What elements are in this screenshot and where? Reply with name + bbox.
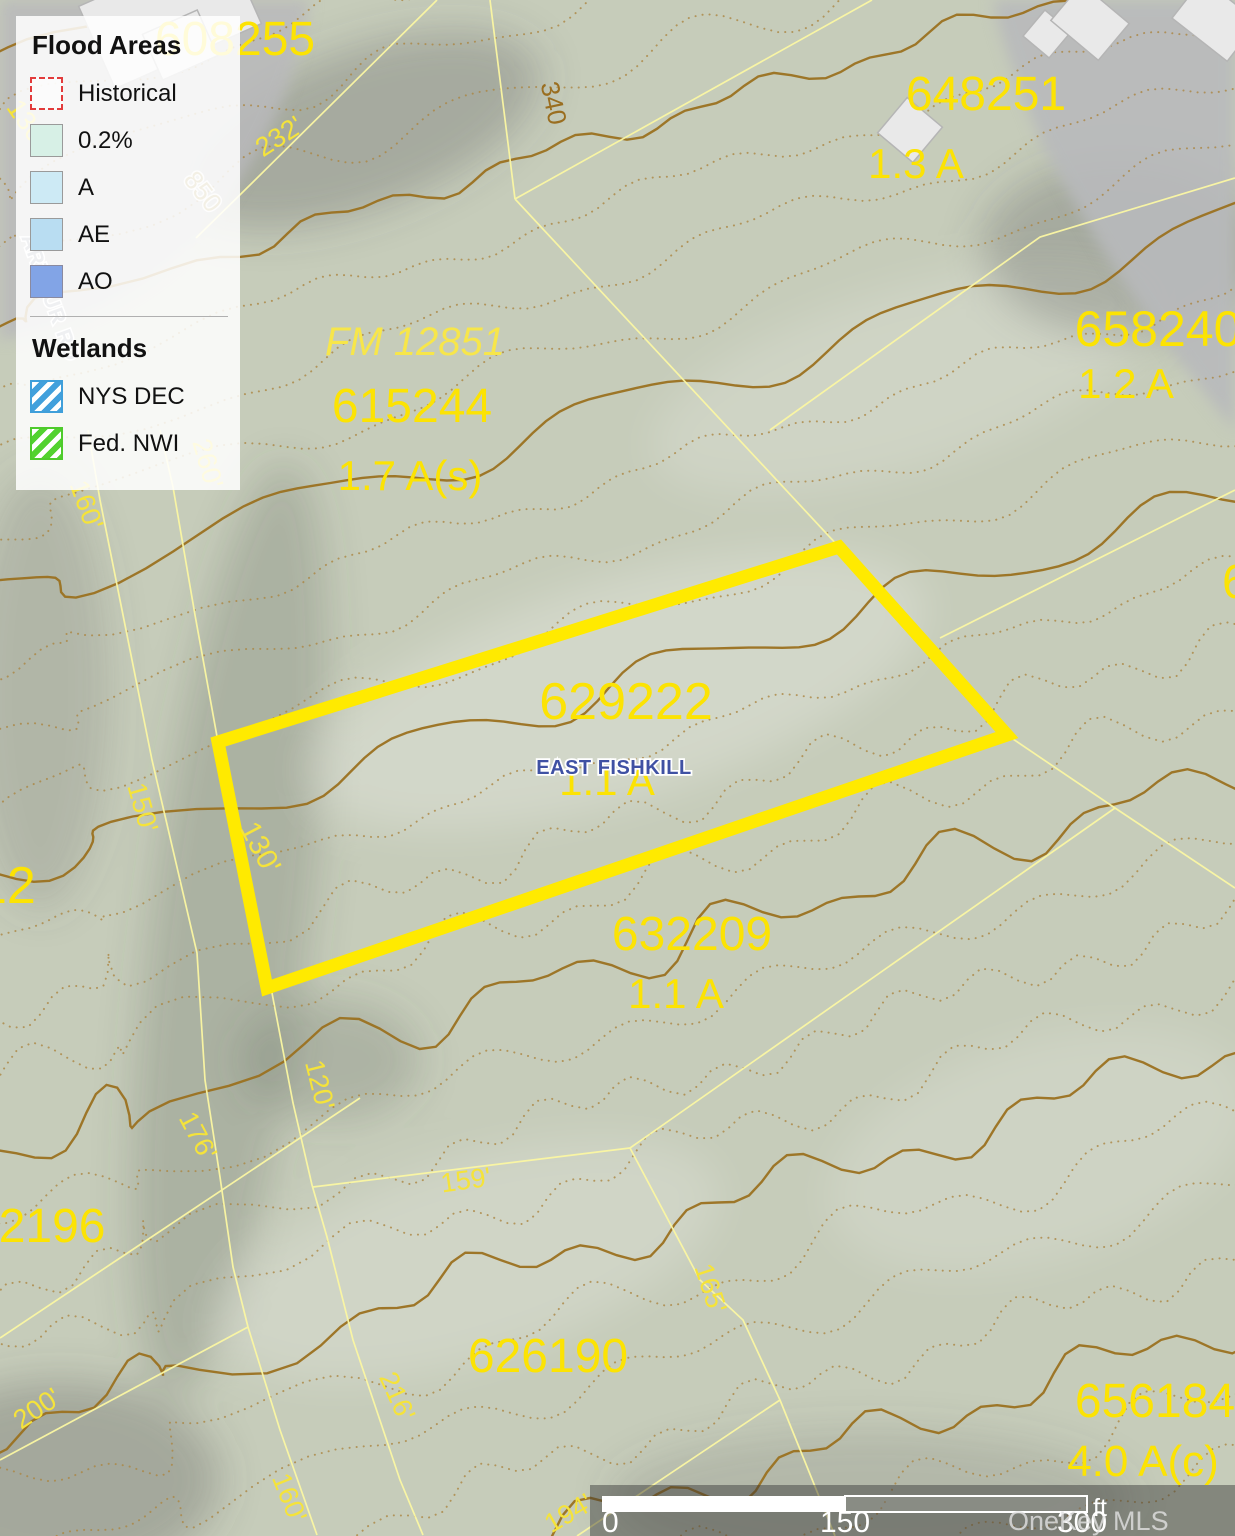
flood-02pct-swatch-icon bbox=[30, 124, 63, 157]
parcel-label-626190[interactable]: 626190 bbox=[468, 1330, 628, 1383]
flood-zone-ae-swatch-icon bbox=[30, 218, 63, 251]
legend-label: AE bbox=[78, 221, 110, 249]
parcel-label-656184[interactable]: 656184 bbox=[1075, 1375, 1235, 1428]
legend-wetlands-title: Wetlands bbox=[32, 333, 228, 364]
legend-item-zone-ae: AE bbox=[30, 218, 228, 251]
fed-nwi-swatch-icon bbox=[30, 427, 63, 460]
legend-item-zone-a: A bbox=[30, 171, 228, 204]
parcel-area-632209: 1.1 A bbox=[628, 970, 724, 1017]
scale-bar-segment-1 bbox=[602, 1496, 845, 1512]
parcel-label-6[interactable]: 6 bbox=[1222, 556, 1235, 609]
parcel-label-615244[interactable]: 615244 bbox=[332, 380, 492, 433]
legend-item-fed-nwi: Fed. NWI bbox=[30, 427, 228, 460]
parcel-label-648251[interactable]: 648251 bbox=[906, 68, 1066, 121]
legend-item-02pct: 0.2% bbox=[30, 124, 228, 157]
legend-item-historical: Historical bbox=[30, 77, 228, 110]
town-label-east-fishkill: EAST FISHKILL bbox=[536, 757, 691, 779]
scale-mid: 150 bbox=[820, 1506, 870, 1536]
scale-zero: 0 bbox=[602, 1506, 619, 1536]
flood-zone-ao-swatch-icon bbox=[30, 265, 63, 298]
parcel-area-615244: 1.7 A(s) bbox=[338, 452, 483, 499]
legend-label: NYS DEC bbox=[78, 383, 185, 411]
parcel-label-632209[interactable]: 632209 bbox=[612, 908, 772, 961]
legend-label: Fed. NWI bbox=[78, 430, 179, 458]
legend-panel: Flood Areas Historical 0.2% A AE AO Wetl… bbox=[16, 16, 240, 490]
legend-label: Historical bbox=[78, 80, 177, 108]
historical-swatch-icon bbox=[30, 77, 63, 110]
legend-label: A bbox=[78, 174, 94, 202]
legend-label: 0.2% bbox=[78, 127, 133, 155]
parcel-label-629222[interactable]: 629222 bbox=[539, 673, 713, 731]
nys-dec-swatch-icon bbox=[30, 380, 63, 413]
legend-item-nys-dec: NYS DEC bbox=[30, 380, 228, 413]
watermark: OneKey MLS bbox=[1008, 1506, 1169, 1536]
legend-flood-title: Flood Areas bbox=[32, 30, 228, 61]
plat-label-fm12851: FM 12851 bbox=[325, 320, 505, 364]
legend-label: AO bbox=[78, 268, 113, 296]
parcel-area-658240: 1.2 A bbox=[1078, 360, 1174, 407]
legend-item-zone-ao: AO bbox=[30, 265, 228, 298]
flood-zone-a-swatch-icon bbox=[30, 171, 63, 204]
parcel-label-02196[interactable]: 02196 bbox=[0, 1200, 105, 1253]
parcel-label-12[interactable]: 12 bbox=[0, 857, 36, 915]
legend-divider bbox=[30, 316, 228, 317]
parcel-label-658240[interactable]: 658240 bbox=[1075, 301, 1235, 357]
gis-map-view: 340 850 ARTHUR RD 232' 130' 260' 160' 15… bbox=[0, 0, 1235, 1536]
parcel-area-648251: 1.3 A bbox=[868, 140, 964, 187]
parcel-area-656184: 4.0 A(c) bbox=[1067, 1437, 1219, 1486]
